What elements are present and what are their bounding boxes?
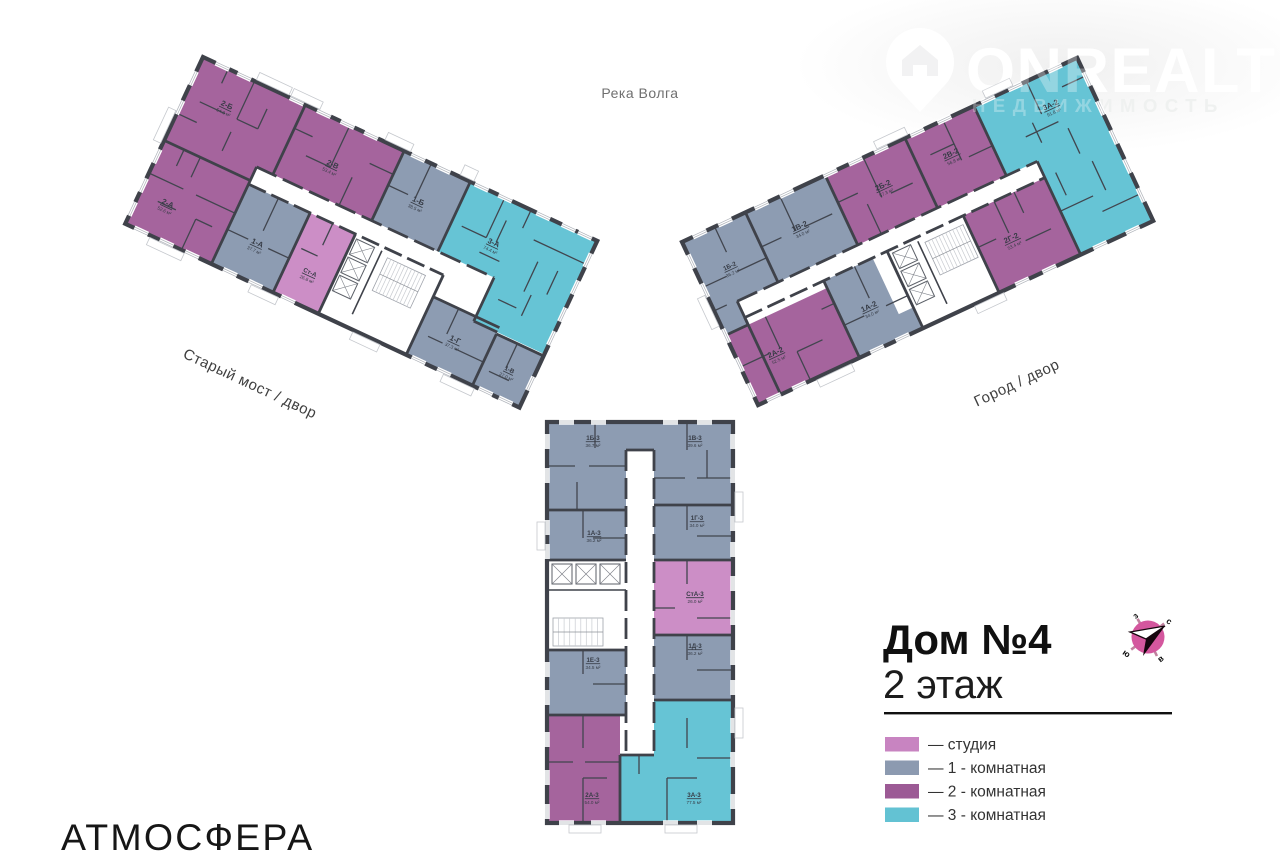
svg-text:2 этаж: 2 этаж bbox=[883, 663, 1003, 707]
svg-text:36.2 м²: 36.2 м² bbox=[688, 651, 703, 656]
svg-text:Река Волга: Река Волга bbox=[601, 85, 678, 101]
svg-text:26.0 м²: 26.0 м² bbox=[688, 599, 703, 604]
svg-text:1Б-3: 1Б-3 bbox=[586, 435, 600, 442]
svg-text:— 3 - комнатная: — 3 - комнатная bbox=[928, 807, 1046, 824]
svg-text:1А-3: 1А-3 bbox=[587, 530, 601, 537]
svg-text:1Д-3: 1Д-3 bbox=[688, 643, 702, 650]
svg-text:Дом №4: Дом №4 bbox=[883, 616, 1052, 663]
svg-text:2А-3: 2А-3 bbox=[585, 792, 599, 799]
svg-text:3А-3: 3А-3 bbox=[687, 792, 701, 799]
svg-text:39.6 м²: 39.6 м² bbox=[688, 443, 703, 448]
svg-text:СтА-3: СтА-3 bbox=[686, 591, 704, 598]
svg-text:77.5 м²: 77.5 м² bbox=[687, 800, 702, 805]
svg-text:54.0 м²: 54.0 м² bbox=[585, 800, 600, 805]
svg-text:1Г-3: 1Г-3 bbox=[691, 515, 704, 522]
svg-text:34.5 м²: 34.5 м² bbox=[586, 665, 601, 670]
svg-text:34.0 м²: 34.0 м² bbox=[690, 523, 705, 528]
svg-text:36.2 м²: 36.2 м² bbox=[587, 538, 602, 543]
svg-text:АТМОСФЕРА: АТМОСФЕРА bbox=[61, 816, 314, 855]
svg-text:1Е-3: 1Е-3 bbox=[586, 657, 600, 664]
svg-text:— 2 - комнатная: — 2 - комнатная bbox=[928, 784, 1046, 801]
svg-text:— 1 - комнатная: — 1 - комнатная bbox=[928, 760, 1046, 777]
svg-text:36.7 м²: 36.7 м² bbox=[586, 443, 601, 448]
svg-text:— студия: — студия bbox=[928, 737, 996, 754]
svg-text:1В-3: 1В-3 bbox=[688, 435, 702, 442]
svg-text:НЕДВИЖИМОСТЬ: НЕДВИЖИМОСТЬ bbox=[972, 95, 1225, 116]
